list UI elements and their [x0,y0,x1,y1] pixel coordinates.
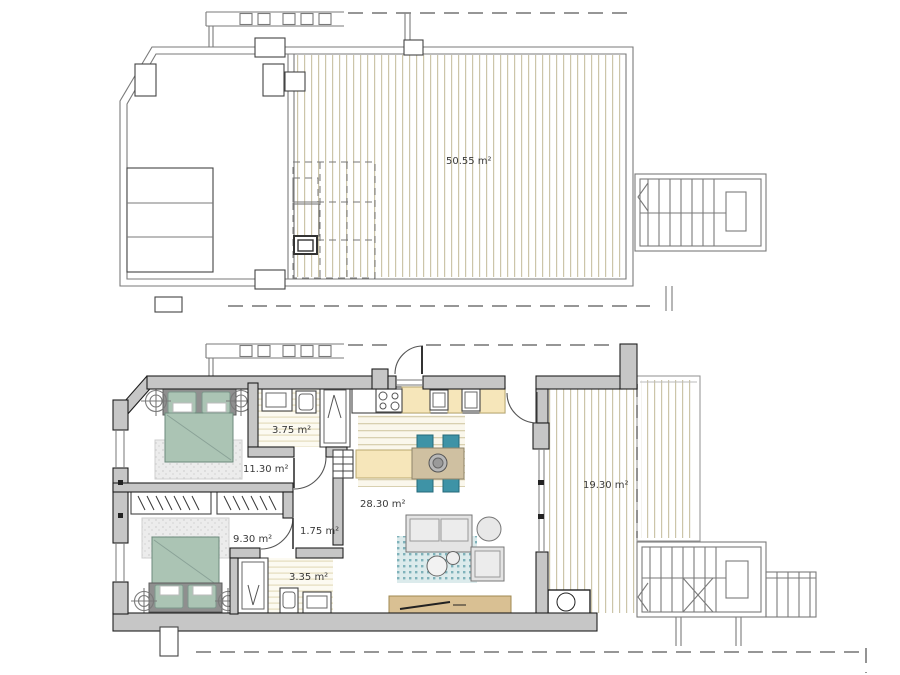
upper-pillar [255,270,285,289]
shower-icon [320,386,350,447]
upper-plan: 50.55 m² [120,12,766,312]
double-bed-icon [163,388,236,462]
shelving-unit-icon [333,450,353,478]
upper-pier [263,64,284,96]
kitchen-sink-icon [430,390,448,410]
stove-icon [376,389,402,412]
upper-stairs-icon [635,174,766,251]
upper-railing [206,12,410,47]
dining-chair-icon [417,479,433,492]
armchair-icon [471,547,504,581]
porch-stub [160,627,178,656]
double-bed-icon [149,537,222,612]
door-bedroom1 [294,457,326,489]
terrace-deck-floor [548,389,637,613]
upper-storage-unit [127,168,213,272]
kitchen-counter [352,387,505,413]
floor-plan-page: 50.55 m² [0,0,900,675]
washing-machine-icon [548,590,590,615]
door-balcony [395,346,423,374]
coffee-table-icon [427,556,447,576]
round-chair-icon [477,517,501,541]
room-label-living-kitchen: 28.30 m² [360,499,406,510]
room-label-bedroom1: 11.30 m² [243,464,289,475]
room-label-upper-terrace: 50.55 m² [446,156,492,167]
wardrobe-icon [131,491,289,514]
upper-wall-tab [285,72,305,91]
lower-stairs-icon [637,542,816,646]
counter-segment [402,387,430,413]
lower-railing [206,344,344,376]
shower-icon [238,558,268,613]
room-label-terrace: 19.30 m² [583,480,629,491]
bedroom2 [131,518,241,614]
kitchen-island [356,450,412,478]
upper-pillar [255,38,285,57]
coffee-table-icon [447,552,460,565]
dining-chair-icon [443,435,459,448]
sofa-icon [406,515,472,552]
upper-pier [135,64,156,96]
room-label-bathroom2: 3.35 m² [289,572,328,583]
floor-plan-canvas: 50.55 m² [0,0,900,675]
living-area [389,515,511,614]
room-label-hall: 1.75 m² [300,526,339,537]
door-entrance [507,392,537,423]
tv-sideboard-icon [389,596,511,614]
upper-bottom-details [155,286,672,312]
upper-pillar [404,40,423,55]
dining-chair-icon [417,435,433,448]
room-label-bedroom2: 9.30 m² [233,534,272,545]
room-label-bathroom1: 3.75 m² [272,425,311,436]
bedroom1 [141,386,256,479]
appliance-icon [462,389,480,411]
lower-plan: 11.30 m² 3.75 m² 28.30 m² 1.75 m² 9.30 m… [113,344,866,673]
dining-chair-icon [443,479,459,492]
